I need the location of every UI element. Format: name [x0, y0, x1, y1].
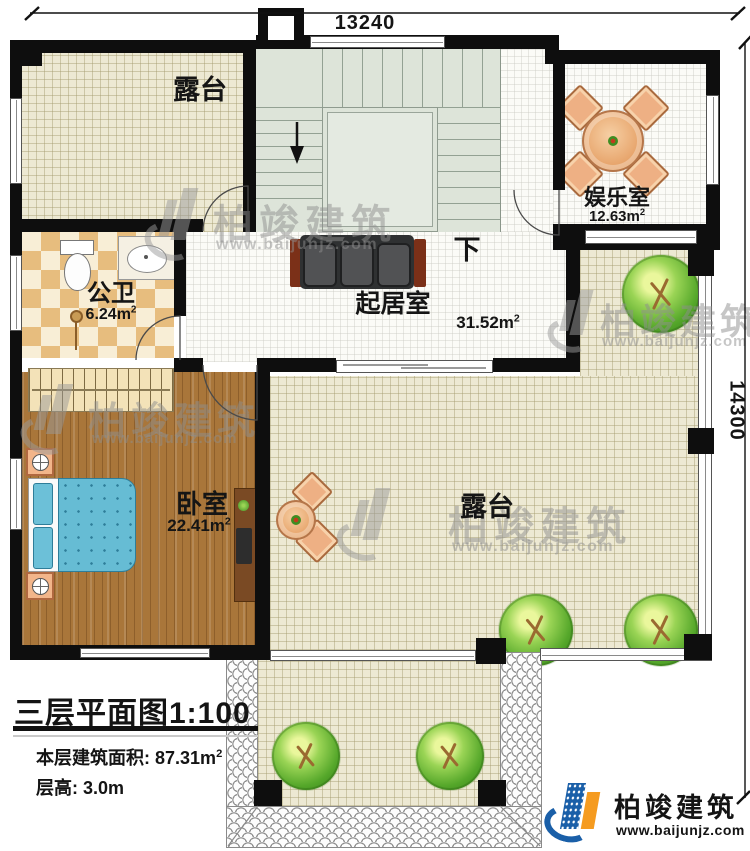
roof-tile-band-bottom — [226, 806, 542, 848]
watermark-logo-icon — [26, 384, 82, 454]
tree-icon — [272, 722, 340, 790]
floor-hall-strip — [500, 49, 553, 232]
curb-terrace-lower — [270, 650, 476, 661]
sliding-door-living-terrace — [336, 360, 493, 373]
label-stairs-down: 下 — [452, 236, 482, 264]
window-terrace-tl-left — [10, 98, 22, 184]
watermark-website: www.baijunjz.com — [92, 430, 237, 447]
window-entertainment-bottom — [585, 230, 697, 244]
bed-pillow-2 — [33, 527, 53, 569]
dimension-tick — [739, 36, 750, 49]
nightstand-bottom — [26, 572, 54, 600]
dimension-top-label: 13240 — [325, 13, 405, 34]
bed-quilt — [58, 478, 136, 572]
window-bathroom-left — [10, 255, 22, 331]
dimension-right-label: 14300 — [726, 368, 747, 454]
chimney-flue — [268, 16, 294, 40]
watermark-website: www.baijunjz.com — [216, 236, 378, 254]
label-living-room-area: 31.52m2 — [428, 313, 548, 332]
label-bedroom-area: 22.41m2 — [139, 516, 259, 535]
wall-terrace-tl-top — [10, 40, 256, 53]
parapet-post — [688, 428, 714, 454]
round-table-terrace — [276, 500, 316, 540]
title-underline-thin — [13, 735, 258, 737]
dimension-tick — [737, 791, 750, 804]
title-underline-thick — [13, 726, 258, 731]
floor-plan-canvas: 柏竣建筑 www.baijunjz.com 柏竣建筑 www.baijunjz.… — [0, 0, 750, 851]
label-bedroom: 卧室 — [142, 491, 262, 518]
label-bathroom: 公卫 — [51, 281, 171, 306]
label-entertainment: 娱乐室 — [555, 186, 679, 209]
sofa-armrest-right — [414, 239, 426, 287]
wall-entertainment-top — [545, 50, 720, 64]
brand-name: 柏竣建筑 — [614, 786, 738, 825]
label-terrace-right: 露台 — [427, 493, 547, 521]
roof-tile-band-right — [500, 652, 542, 808]
parapet-post — [476, 638, 506, 664]
wall-living-bottom-a — [186, 358, 203, 372]
window-entertainment-right — [706, 95, 719, 185]
label-bathroom-area: 6.24m2 — [51, 306, 171, 324]
tree-icon — [416, 722, 484, 790]
window-bedroom-bottom — [80, 648, 210, 658]
stair-railing-line — [500, 49, 501, 232]
watermark-website: www.baijunjz.com — [602, 333, 747, 350]
stair-treads-top — [322, 49, 500, 107]
watermark-website: www.baijunjz.com — [452, 538, 614, 556]
floor-height-text: 层高: 3.0m — [36, 774, 124, 800]
brand-website: www.baijunjz.com — [616, 822, 745, 838]
parapet-post — [688, 250, 714, 276]
parapet-post — [254, 780, 282, 806]
window-bedroom-left — [10, 458, 22, 530]
stair-treads-left — [256, 107, 322, 199]
bed-pillow-1 — [33, 483, 53, 525]
round-table-entertainment — [582, 110, 644, 172]
brand-logo-orange-tower — [581, 792, 601, 829]
wall-living-bottom-b — [257, 358, 336, 372]
watermark-logo-icon — [552, 290, 602, 352]
wall-bathroom-right-b — [174, 358, 186, 372]
dimension-tick — [731, 7, 745, 20]
parapet-post — [478, 780, 506, 806]
floor-area-text: 本层建筑面积: 87.31m2 — [36, 744, 222, 770]
label-terrace-top-left: 露台 — [140, 76, 260, 104]
watermark-logo-icon — [150, 188, 208, 260]
stair-treads-right — [438, 107, 500, 232]
dimension-tick — [25, 7, 39, 20]
watermark-logo-icon — [342, 488, 400, 560]
wall-entertainment-left — [553, 64, 565, 190]
parapet-post — [684, 634, 712, 660]
sink-faucet-dot — [144, 255, 148, 259]
brand-logo-icon — [548, 780, 610, 844]
window-stair-top — [310, 36, 445, 48]
label-entertainment-area: 12.63m2 — [555, 208, 679, 225]
